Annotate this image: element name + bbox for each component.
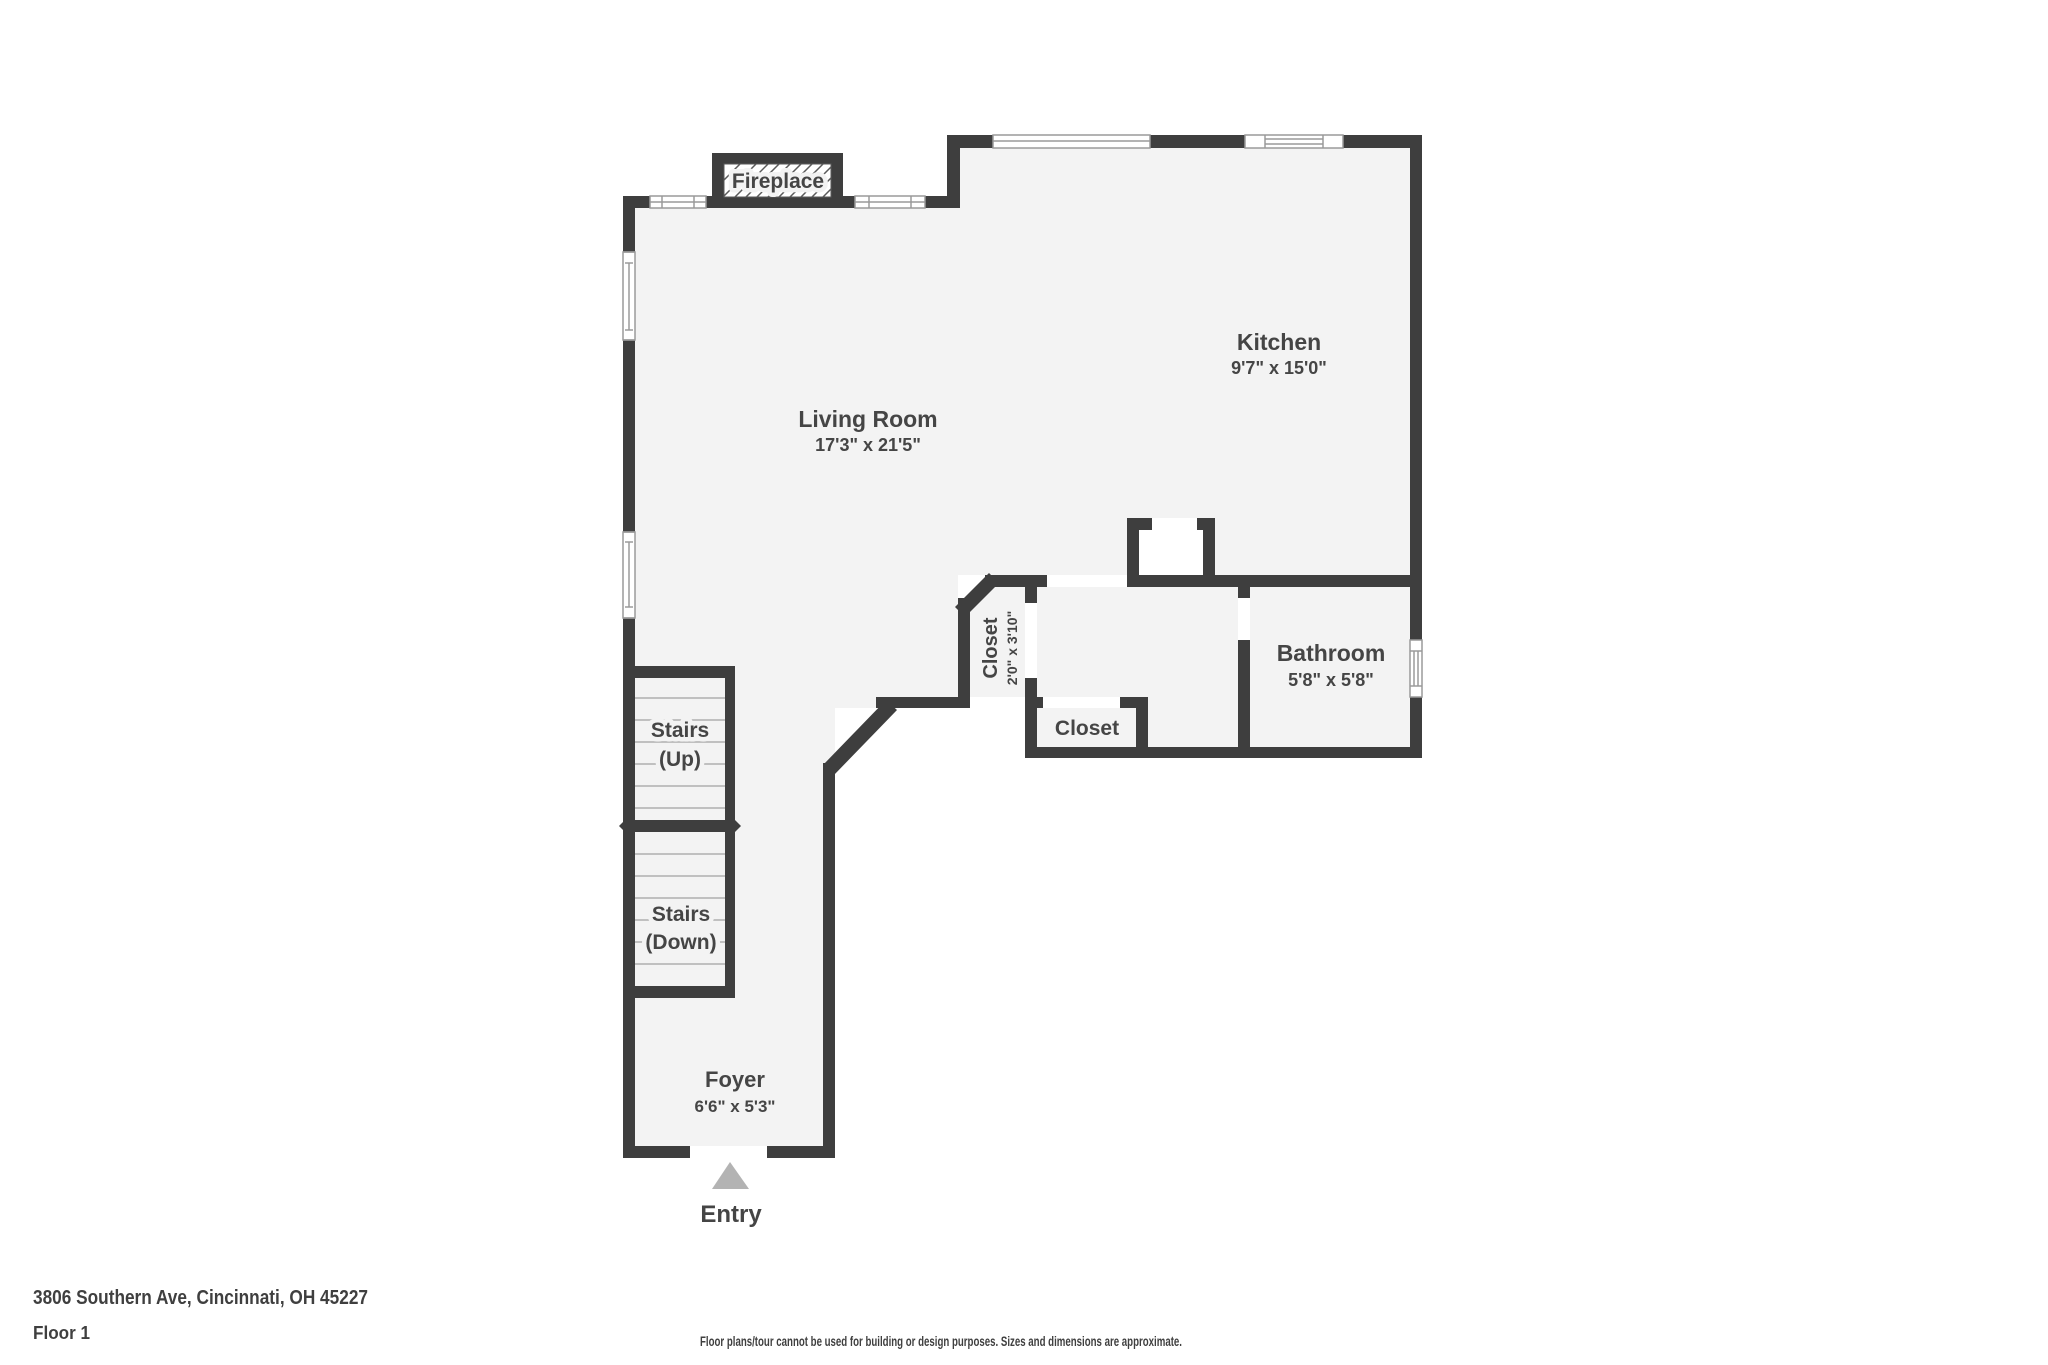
stairs-up-label-line1: Stairs [651, 719, 709, 742]
closet-hall-dims: 2'0" x 3'10" [1004, 611, 1020, 685]
hall-floor [635, 575, 958, 697]
disclaimer-text: Floor plans/tour cannot be used for buil… [700, 1333, 1182, 1349]
bathroom-window [1410, 640, 1422, 697]
bathroom-door-opening [1238, 598, 1250, 640]
kitchen-top-window-1 [993, 135, 1150, 148]
stairs-top-wall [625, 666, 735, 678]
stairs-up-label-line2: (Up) [659, 748, 701, 771]
stairs-down-label-line1: Stairs [652, 903, 710, 926]
foyer-name: Foyer [705, 1067, 765, 1092]
stairs-divider-wall [619, 820, 741, 832]
kitchen-floor [947, 148, 1410, 575]
address-text: 3806 Southern Ave, Cincinnati, OH 45227 [33, 1287, 368, 1309]
living-room-name: Living Room [798, 406, 937, 432]
stairs-down-label-line2: (Down) [645, 931, 716, 954]
floor-plan-page: Fireplace Living Room 17'3" x 21'5" Kitc… [0, 0, 2048, 1365]
bath-alcove-floor [1148, 697, 1238, 747]
hall-bottom-wall [876, 697, 970, 708]
closet-hall-top-wall [985, 575, 1047, 587]
living-room-floor [635, 208, 947, 575]
living-room-dims: 17'3" x 21'5" [815, 435, 921, 455]
floor-label-text: Floor 1 [33, 1323, 90, 1343]
south-bottom-wall [1025, 747, 1422, 758]
kitchen-top-window-2 [1245, 135, 1343, 148]
entry-label: Entry [700, 1201, 762, 1228]
niche-interior [1139, 530, 1203, 575]
stairs-bottom-wall [625, 986, 735, 998]
entry-door-opening [690, 1146, 767, 1158]
closet-small-name: Closet [1055, 717, 1119, 740]
living-room-top-window-2 [855, 196, 925, 208]
fireplace: Fireplace [712, 153, 843, 208]
kitchen-name: Kitchen [1237, 329, 1321, 355]
niche-opening [1152, 518, 1197, 530]
closet-small-door-opening [1043, 697, 1120, 708]
living-room-top-window-1 [650, 196, 706, 208]
closet-hall-door-opening [1025, 603, 1037, 678]
bathroom-name: Bathroom [1277, 640, 1386, 666]
kitchen-dims: 9'7" x 15'0" [1231, 358, 1327, 378]
fireplace-label: Fireplace [732, 170, 824, 193]
kitchen-bottom-wall [1215, 575, 1422, 587]
left-wall-window-2 [623, 532, 635, 618]
bathroom-dims: 5'8" x 5'8" [1288, 670, 1374, 690]
bathroom-floor [1250, 587, 1410, 747]
entry-arrow-icon [712, 1162, 749, 1189]
footer: 3806 Southern Ave, Cincinnati, OH 45227 … [33, 1287, 1182, 1349]
floor-plan-canvas: Fireplace Living Room 17'3" x 21'5" Kitc… [0, 0, 2048, 1365]
bath-hall-floor [1037, 587, 1238, 697]
closet-hall-name: Closet [980, 617, 1002, 678]
hall-right-wall [823, 763, 835, 1158]
left-wall-window-1 [623, 252, 635, 340]
foyer-dims: 6'6" x 5'3" [695, 1097, 776, 1116]
